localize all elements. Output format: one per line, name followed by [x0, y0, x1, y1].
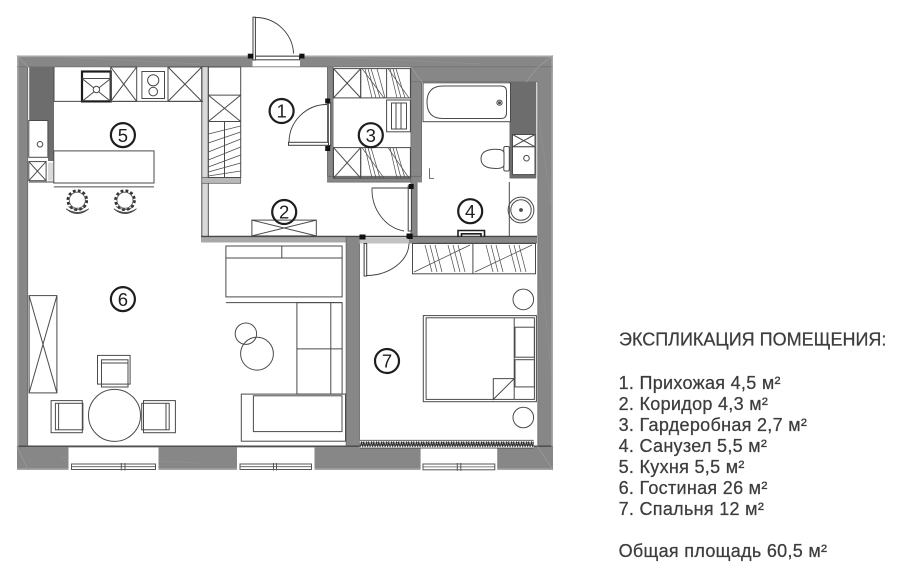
svg-text:2: 2 — [279, 202, 289, 223]
svg-text:1. Прихожая 4,5 м²: 1. Прихожая 4,5 м² — [619, 373, 781, 393]
svg-text:6. Гостиная 26 м²: 6. Гостиная 26 м² — [619, 478, 768, 498]
svg-text:4: 4 — [465, 201, 475, 222]
svg-text:7: 7 — [382, 351, 392, 372]
svg-text:4. Санузел 5,5 м²: 4. Санузел 5,5 м² — [619, 436, 768, 456]
svg-text:ЭКСПЛИКАЦИЯ ПОМЕЩЕНИЯ:: ЭКСПЛИКАЦИЯ ПОМЕЩЕНИЯ: — [619, 330, 886, 350]
svg-text:2. Коридор 4,3 м²: 2. Коридор 4,3 м² — [619, 394, 769, 414]
svg-text:7. Спальня 12 м²: 7. Спальня 12 м² — [619, 499, 765, 519]
svg-text:3. Гардеробная 2,7 м²: 3. Гардеробная 2,7 м² — [619, 415, 808, 435]
svg-text:3: 3 — [366, 125, 376, 146]
svg-text:5: 5 — [118, 125, 128, 146]
svg-text:5. Кухня 5,5 м²: 5. Кухня 5,5 м² — [619, 457, 745, 477]
svg-text:6: 6 — [118, 289, 128, 310]
svg-text:Общая площадь 60,5 м²: Общая площадь 60,5 м² — [619, 541, 828, 561]
svg-text:1: 1 — [276, 101, 286, 122]
